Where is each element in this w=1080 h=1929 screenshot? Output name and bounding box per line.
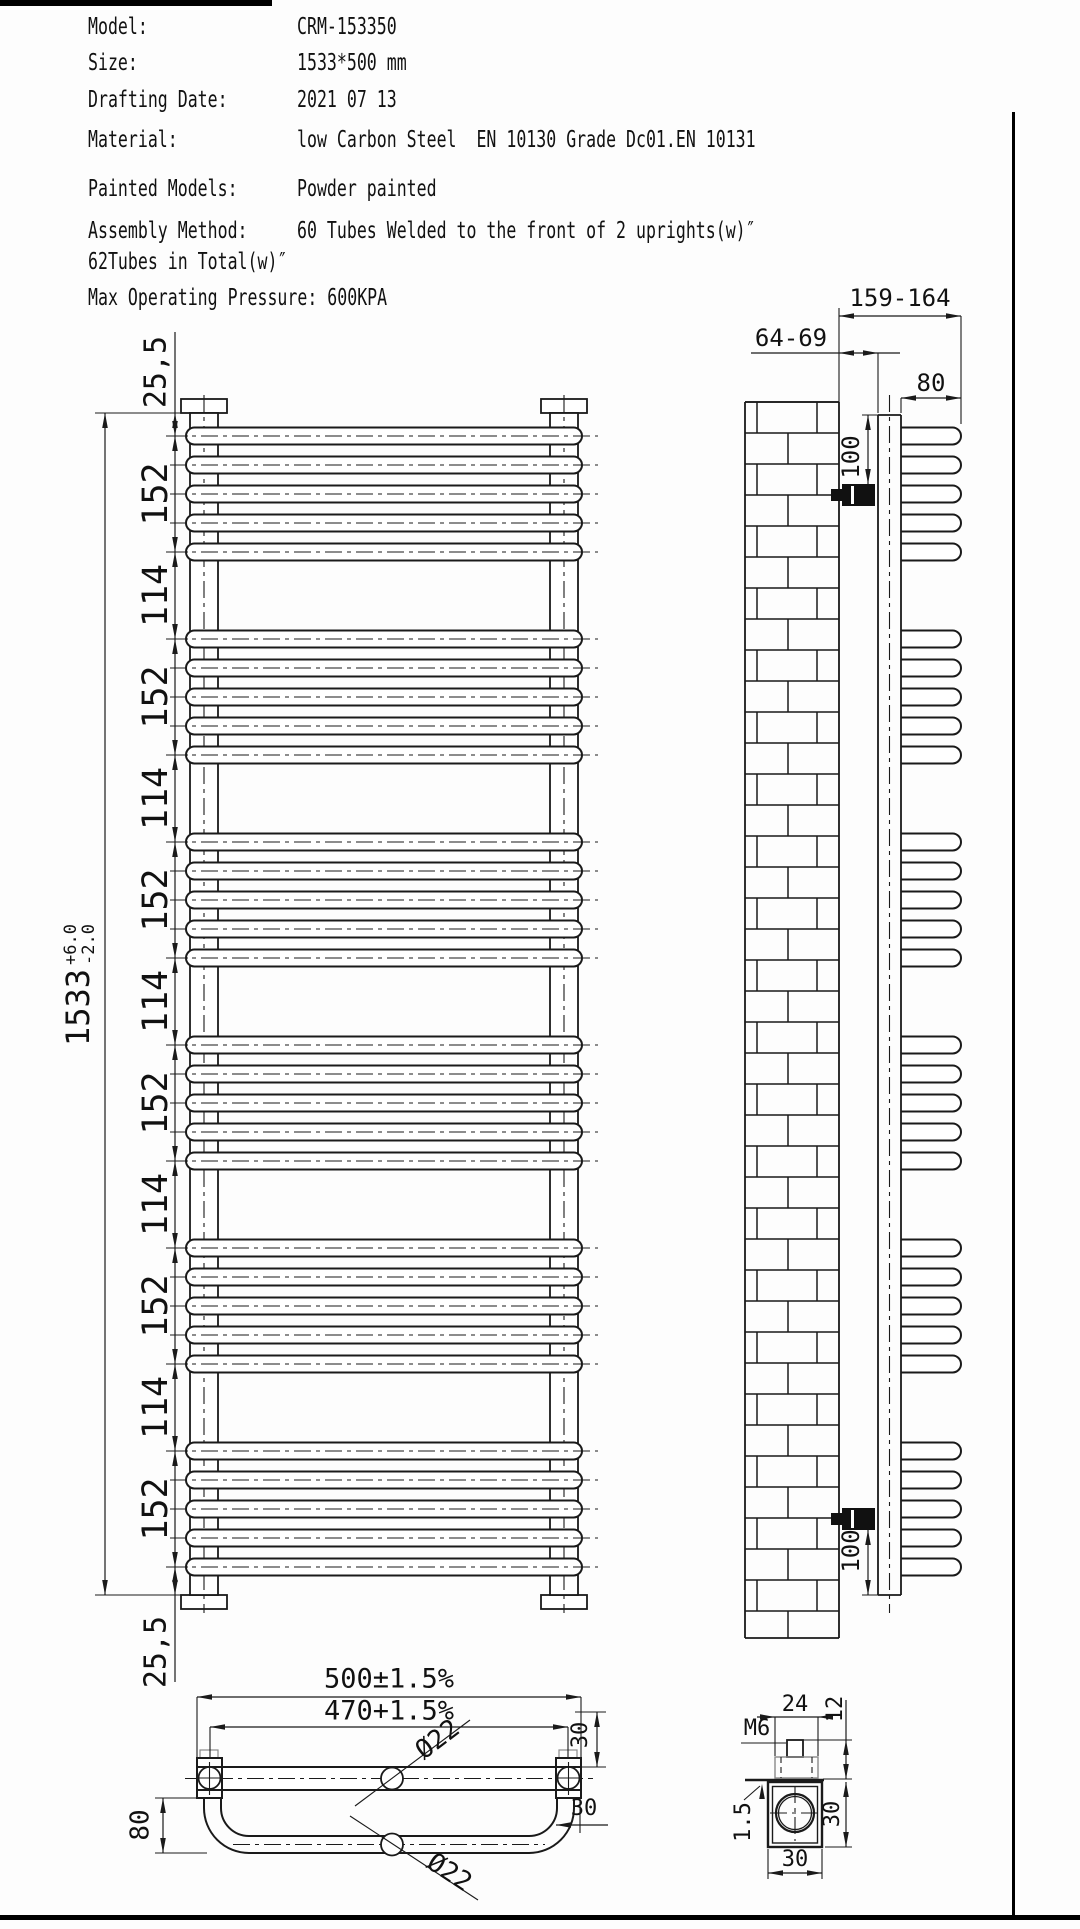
chain-dim-label: 152 bbox=[136, 868, 176, 931]
front-view bbox=[170, 395, 598, 1613]
dim-label: 80 bbox=[126, 1809, 156, 1840]
dim-label: 1.5 bbox=[731, 1802, 756, 1842]
chain-dim-label: 152 bbox=[136, 665, 176, 728]
side-view bbox=[745, 395, 961, 1638]
dim-label: 30 bbox=[571, 1796, 598, 1821]
dim-label: 100 bbox=[837, 1529, 865, 1572]
side-view-dimensions: 159-16464-6980100100 bbox=[751, 284, 961, 1595]
dim-total-height: 1533+6.0-2.0 bbox=[59, 924, 99, 1046]
radiator-drawing: 25,515211415211415211415211415211415225,… bbox=[0, 0, 1080, 1929]
chain-dim-label: 152 bbox=[136, 1274, 176, 1337]
chain-dim-label: 25,5 bbox=[139, 1616, 174, 1688]
dim-label: 159-164 bbox=[849, 284, 950, 312]
svg-text:+6.0: +6.0 bbox=[61, 924, 81, 965]
sheet-border-bottom bbox=[0, 1915, 1080, 1920]
chain-dim-label: 114 bbox=[136, 1173, 176, 1236]
wall-bracket bbox=[842, 484, 875, 506]
dim-label: 30 bbox=[568, 1722, 593, 1749]
chain-dim-label: 25,5 bbox=[139, 336, 174, 408]
dim-label: M6 bbox=[744, 1716, 771, 1741]
chain-dim-label: 114 bbox=[136, 970, 176, 1033]
chain-dim-label: 152 bbox=[136, 1477, 176, 1540]
chain-dim-label: 114 bbox=[136, 767, 176, 830]
svg-text:-2.0: -2.0 bbox=[79, 924, 99, 965]
chain-dim-label: 114 bbox=[136, 1376, 176, 1439]
chain-dim-label: 152 bbox=[136, 462, 176, 525]
front-view-dimensions: 25,515211415211415211415211415211415225,… bbox=[59, 332, 192, 1688]
wall-bracket bbox=[842, 1508, 875, 1530]
bracket-detail bbox=[745, 1740, 824, 1847]
bracket-detail-dimensions: M6241230301.5 bbox=[731, 1692, 852, 1879]
dim-label: 470+1.5% bbox=[324, 1696, 454, 1727]
technical-drawing-page: Model: CRM-153350 Size: 1533*500 mm Draf… bbox=[0, 0, 1080, 1929]
svg-text:1533: 1533 bbox=[59, 969, 97, 1046]
chain-dim-label: 152 bbox=[136, 1071, 176, 1134]
dim-label: 100 bbox=[837, 435, 865, 478]
dim-label: 64-69 bbox=[755, 324, 827, 352]
dim-label: 30 bbox=[782, 1847, 809, 1872]
dim-label: 80 bbox=[917, 369, 946, 397]
dim-label: 24 bbox=[782, 1692, 809, 1717]
sheet-border-top bbox=[0, 0, 272, 6]
top-view bbox=[185, 1750, 593, 1856]
dim-label: 500±1.5% bbox=[324, 1664, 454, 1695]
dim-label: 12 bbox=[823, 1696, 848, 1723]
leader-label: Ø22 bbox=[421, 1847, 477, 1898]
chain-dim-label: 114 bbox=[136, 564, 176, 627]
dim-label: 30 bbox=[820, 1801, 845, 1828]
sheet-border-right bbox=[1012, 112, 1015, 1918]
